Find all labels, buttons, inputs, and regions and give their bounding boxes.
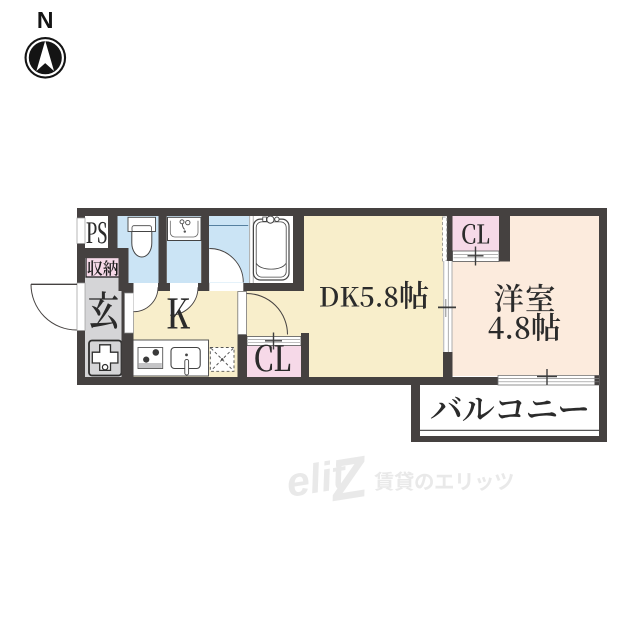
svg-text:N: N [37,7,54,33]
